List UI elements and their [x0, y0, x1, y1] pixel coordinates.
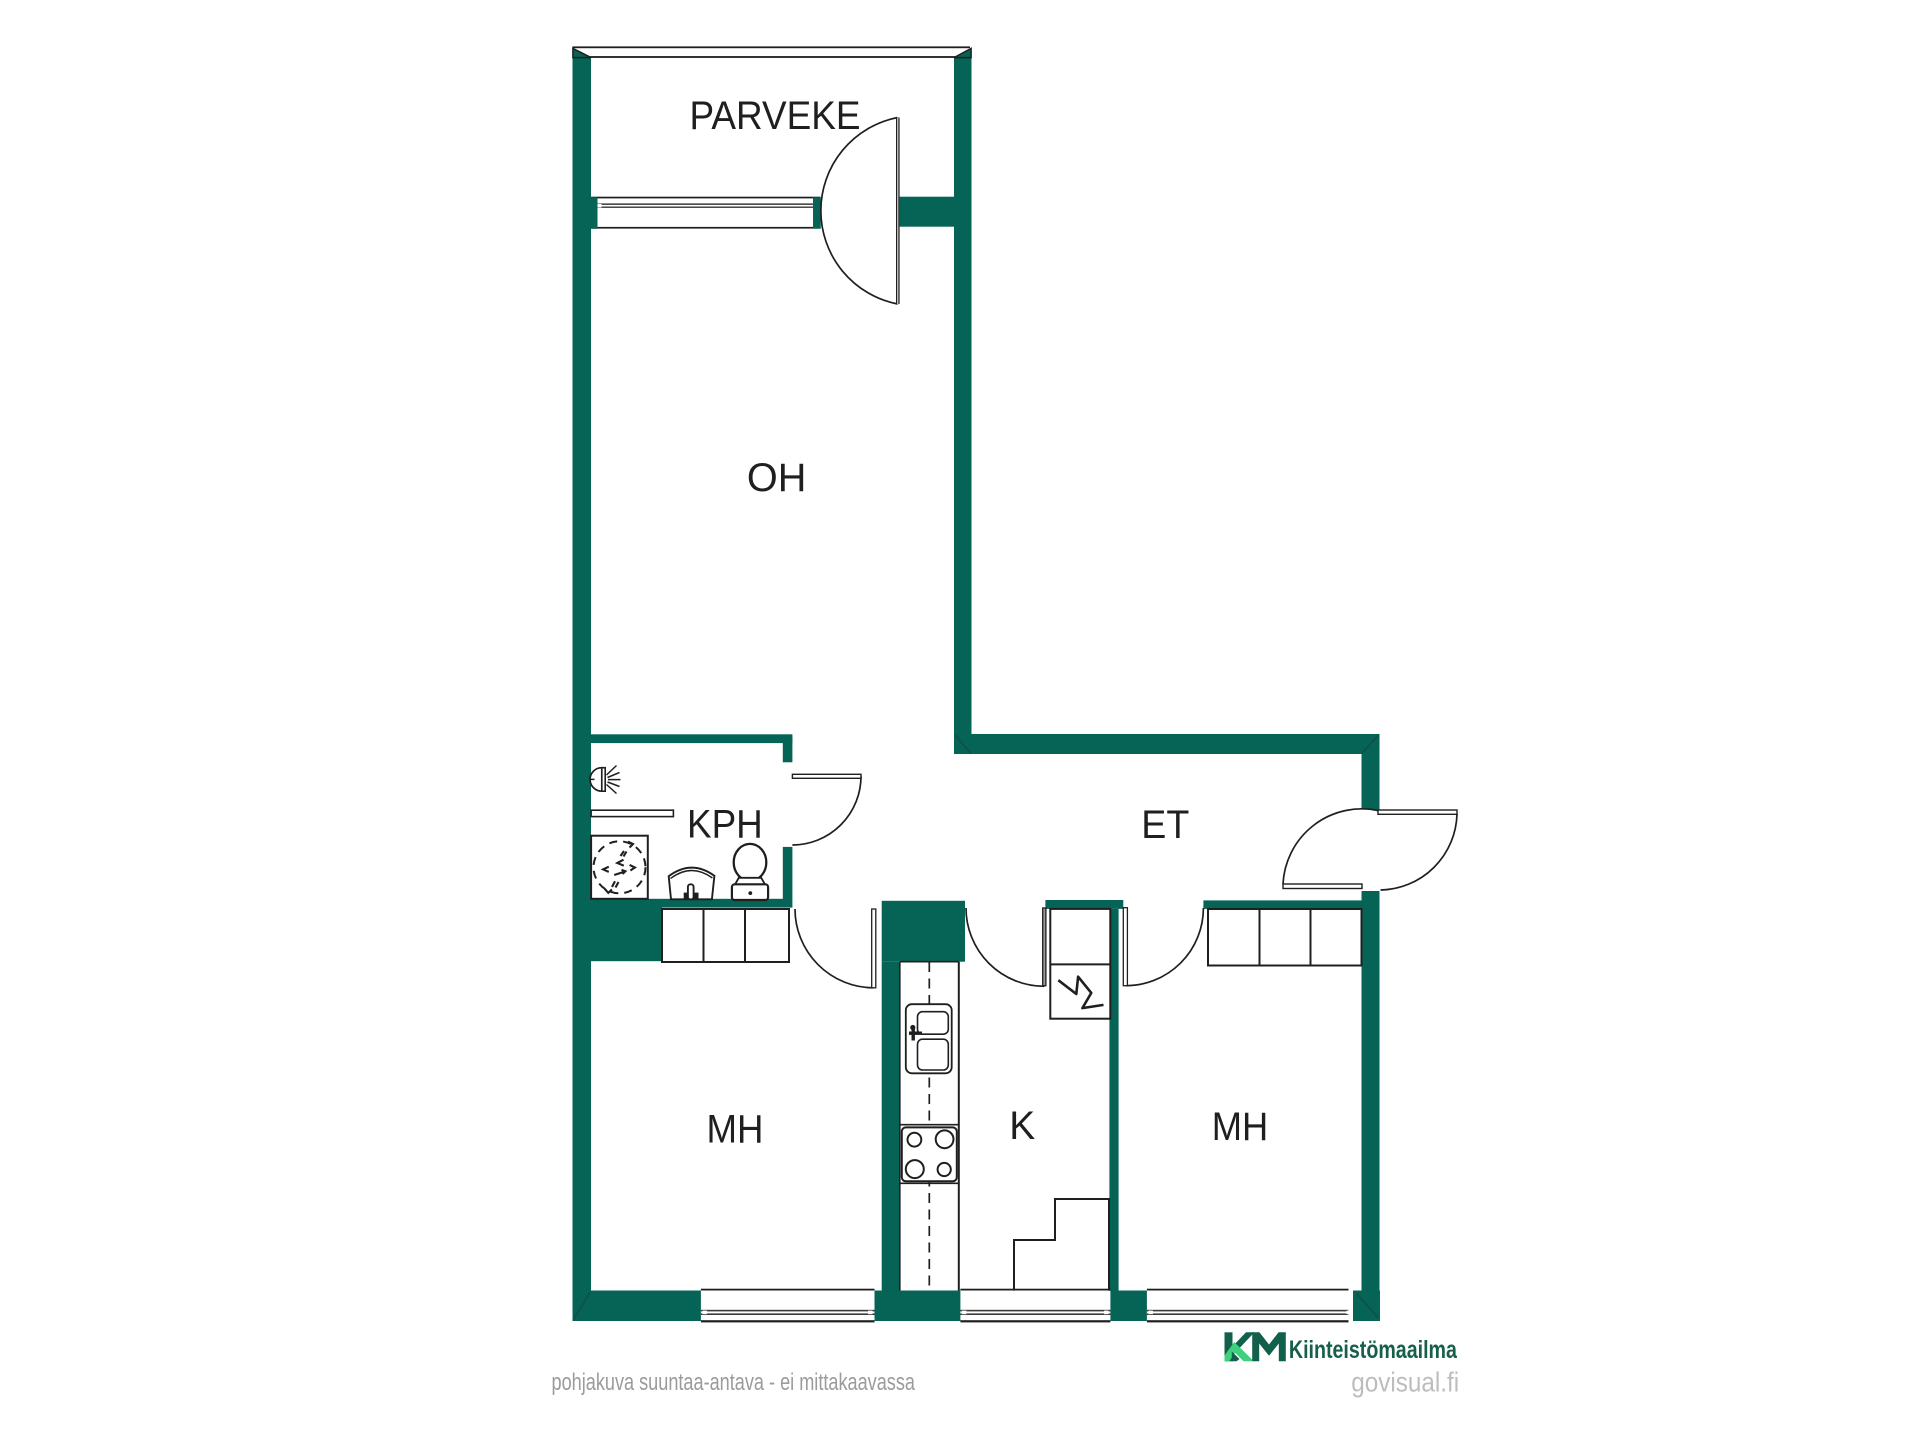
svg-text:MH: MH — [1212, 1105, 1269, 1149]
svg-text:govisual.fi: govisual.fi — [1351, 1367, 1459, 1398]
svg-text:KPH: KPH — [687, 802, 763, 846]
svg-text:ET: ET — [1141, 803, 1189, 847]
svg-text:OH: OH — [747, 456, 807, 500]
svg-text:pohjakuva suuntaa-antava - ei: pohjakuva suuntaa-antava - ei mittakaava… — [552, 1369, 916, 1396]
svg-text:Kiinteistömaailma: Kiinteistömaailma — [1289, 1336, 1458, 1364]
svg-text:PARVEKE: PARVEKE — [690, 94, 861, 138]
svg-text:MH: MH — [707, 1108, 764, 1152]
svg-text:K: K — [1009, 1104, 1035, 1148]
